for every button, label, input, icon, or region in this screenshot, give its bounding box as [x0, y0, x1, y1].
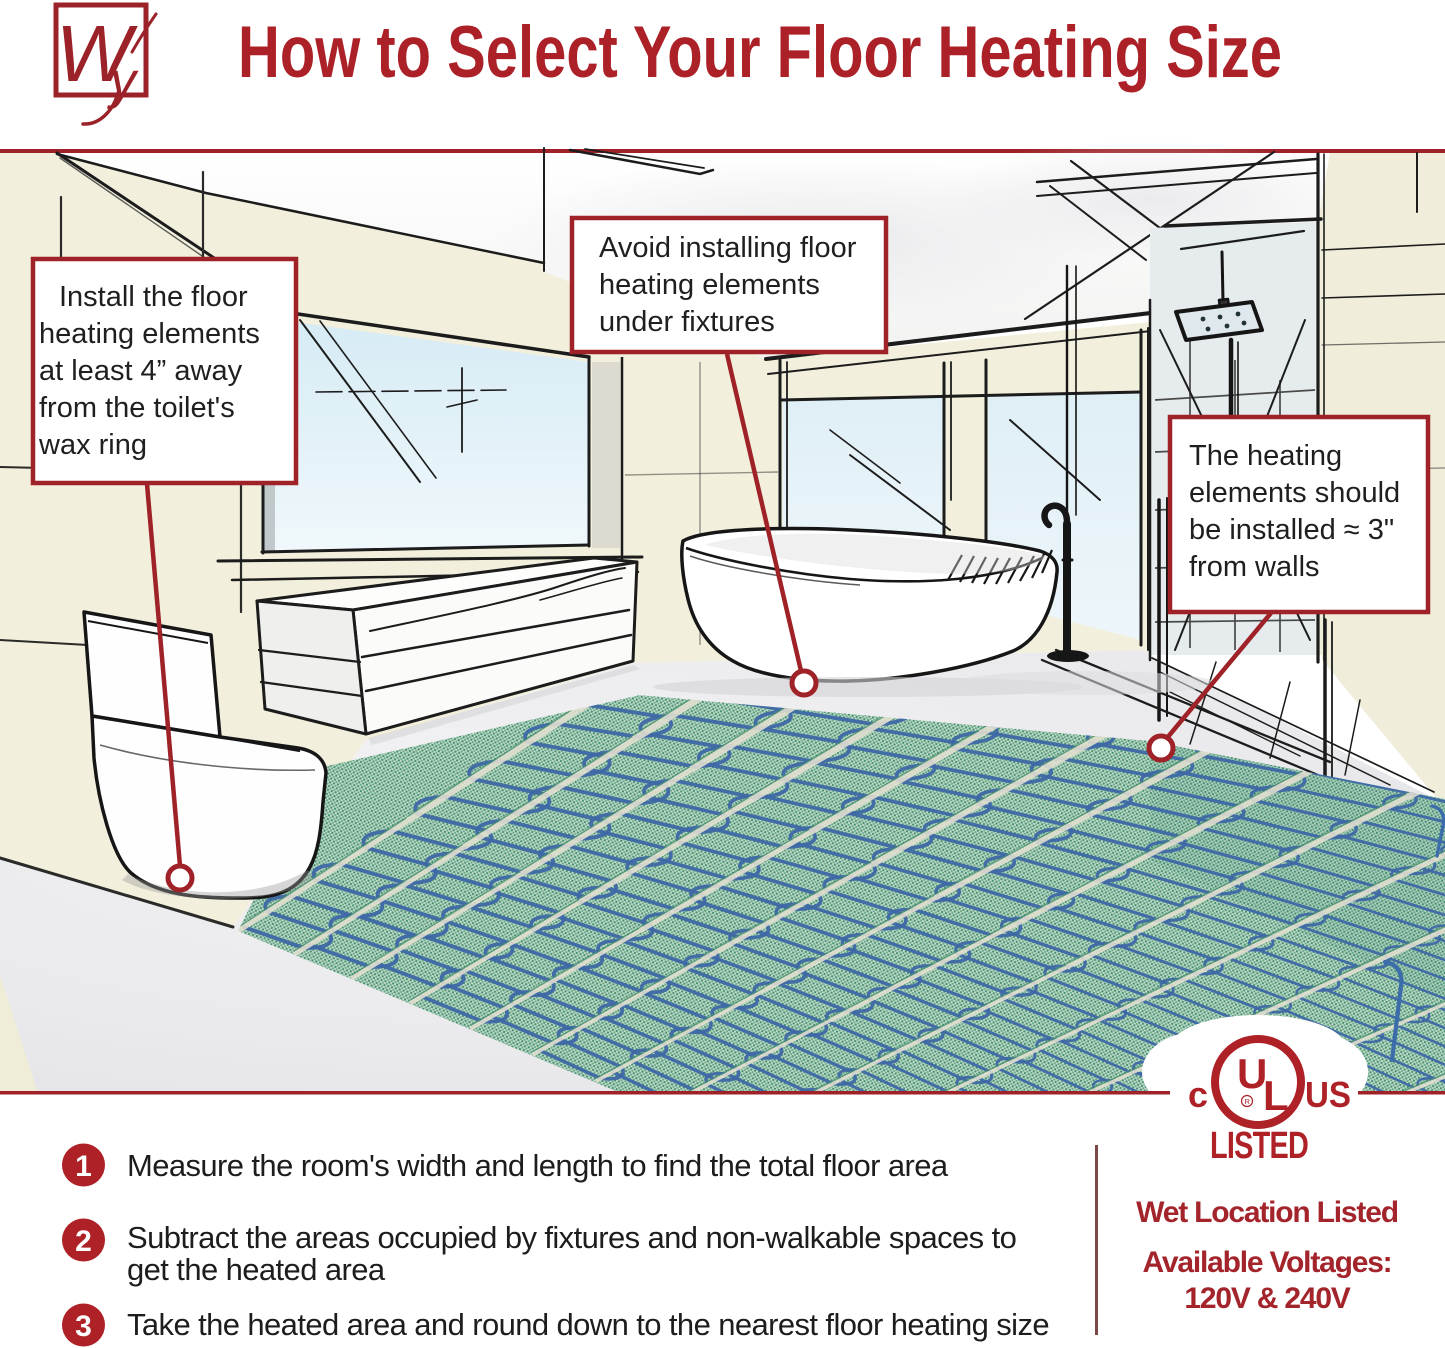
- svg-text:120V & 240V: 120V & 240V: [1184, 1282, 1350, 1315]
- svg-text:Take the heated area and round: Take the heated area and round down to t…: [127, 1307, 1049, 1342]
- svg-text:heating elements: heating elements: [39, 318, 260, 350]
- svg-text:L: L: [1263, 1072, 1289, 1119]
- svg-text:2: 2: [75, 1225, 92, 1258]
- svg-text:wax ring: wax ring: [38, 429, 147, 461]
- svg-text:at least 4” away: at least 4” away: [39, 355, 243, 387]
- svg-text:R: R: [1245, 1097, 1251, 1106]
- svg-text:under fixtures: under fixtures: [599, 306, 775, 338]
- svg-text:Install the floor: Install the floor: [59, 281, 248, 313]
- svg-text:get the heated area: get the heated area: [127, 1252, 386, 1287]
- svg-text:1: 1: [75, 1150, 92, 1183]
- svg-text:The heating: The heating: [1189, 440, 1342, 472]
- svg-text:be installed ≈ 3": be installed ≈ 3": [1189, 514, 1394, 546]
- svg-text:US: US: [1305, 1076, 1351, 1116]
- svg-text:3: 3: [75, 1310, 92, 1343]
- svg-text:LISTED: LISTED: [1210, 1124, 1308, 1167]
- svg-text:Subtract the areas occupied by: Subtract the areas occupied by fixtures …: [127, 1220, 1016, 1255]
- svg-text:Available Voltages:: Available Voltages:: [1143, 1246, 1392, 1279]
- svg-text:from walls: from walls: [1189, 551, 1320, 583]
- svg-text:from the toilet's: from the toilet's: [39, 392, 235, 424]
- svg-text:elements should: elements should: [1189, 477, 1400, 509]
- svg-text:Avoid installing floor: Avoid installing floor: [599, 232, 857, 264]
- svg-text:Wet Location Listed: Wet Location Listed: [1136, 1196, 1398, 1229]
- svg-text:c: c: [1188, 1074, 1208, 1115]
- svg-text:y: y: [107, 52, 139, 110]
- svg-text:Measure the room's width and l: Measure the room's width and length to f…: [127, 1148, 949, 1183]
- svg-text:How to Select Your Floor Heati: How to Select Your Floor Heating Size: [238, 12, 1282, 93]
- svg-text:heating elements: heating elements: [599, 269, 820, 301]
